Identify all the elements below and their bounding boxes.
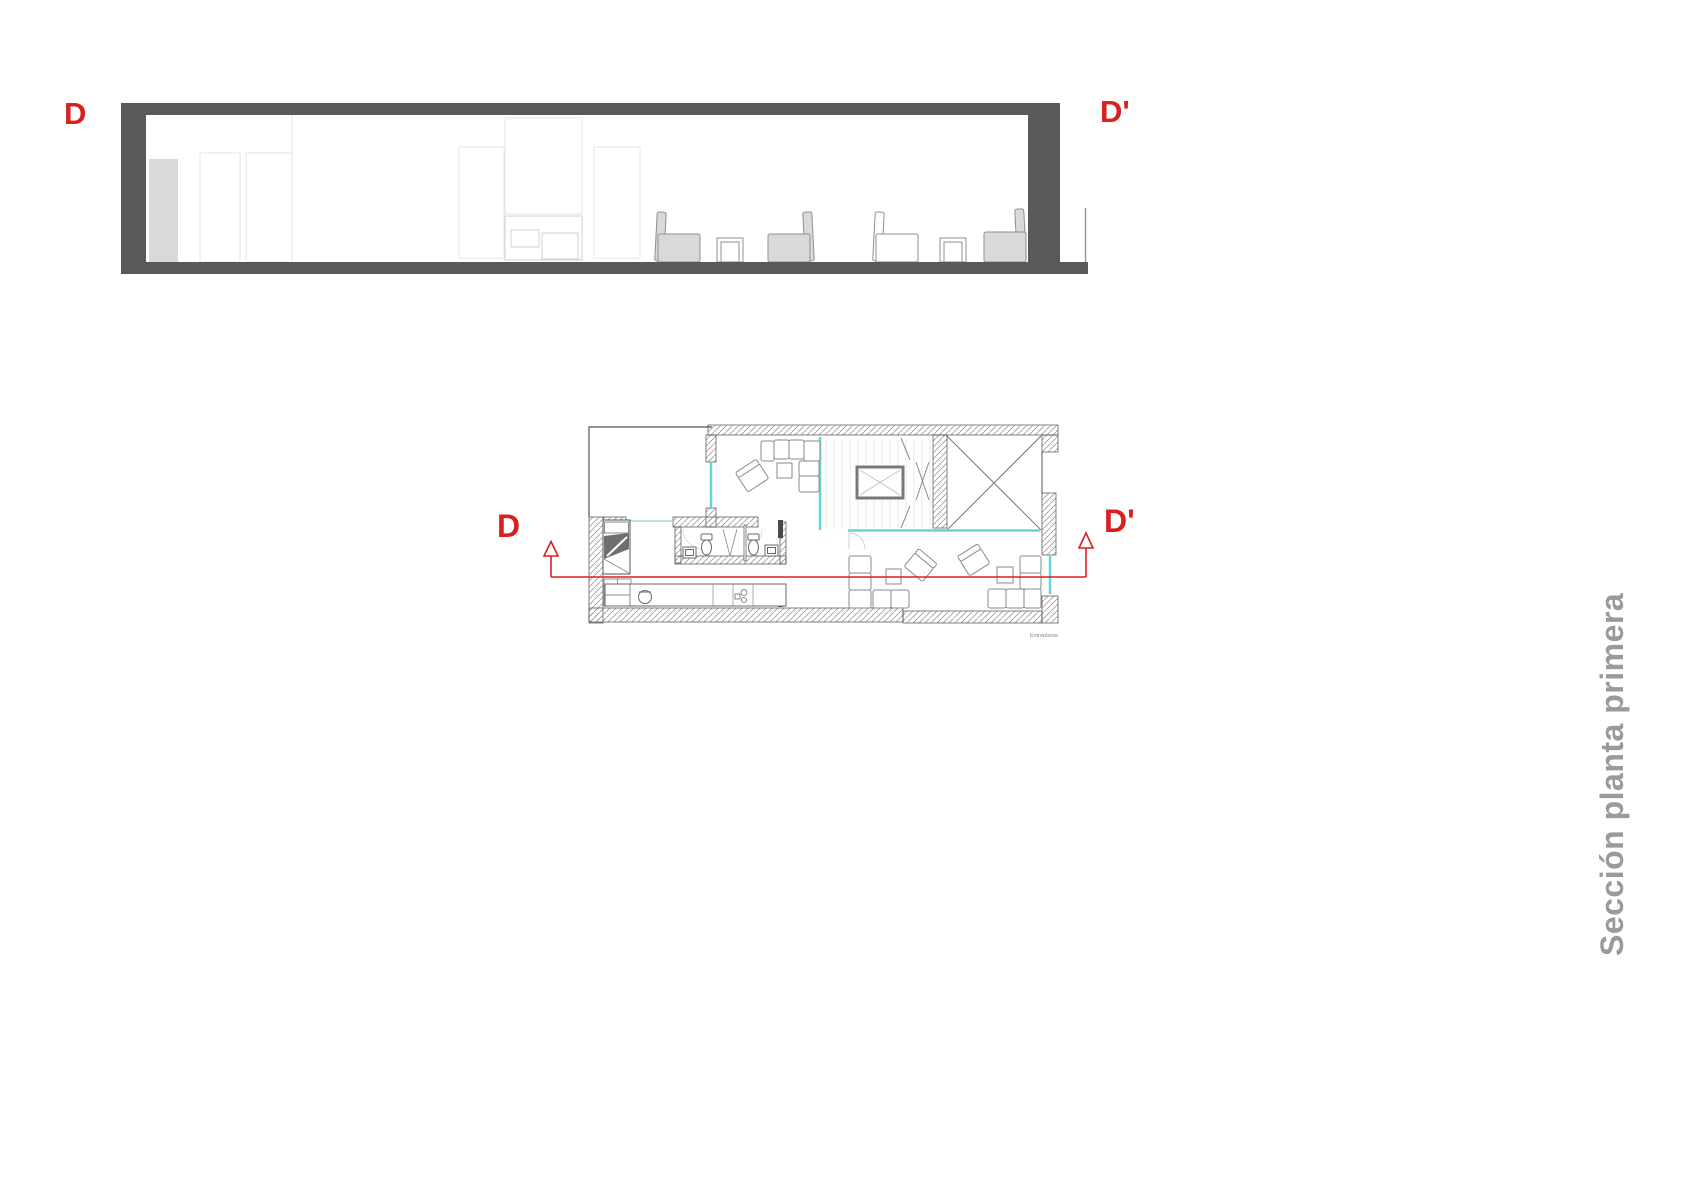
section-low-cabinet: [505, 216, 582, 260]
lounge-group-a: [849, 549, 937, 608]
section-background-lines: [149, 115, 640, 262]
door-swing: [849, 533, 865, 549]
elevator-box: [857, 467, 903, 498]
bathroom-fixtures: [683, 529, 778, 558]
sheet-title: Sección planta primera: [1594, 593, 1631, 956]
section-drawing: D D': [40, 80, 1160, 290]
massage-bed: [603, 520, 630, 574]
section-side-table-2: [940, 238, 966, 262]
section-marker-d-prime: D': [1100, 94, 1130, 129]
lounge-side-table: [777, 463, 792, 478]
plan-caption: Entreplanta: [1030, 633, 1059, 639]
shaft-cross: [947, 436, 1041, 530]
section-arrow-left: [544, 542, 558, 557]
floor-plan-drawing: D D' Entreplanta: [430, 375, 1170, 665]
lounge-group-b: [957, 544, 1041, 608]
glass-partitions: [627, 437, 1050, 594]
plan-marker-d: D: [497, 508, 520, 544]
lounge-armchair: [735, 459, 768, 492]
section-armchair-3: [873, 212, 918, 262]
section-gray-cabinet: [149, 159, 178, 262]
stair-break-marks: [901, 438, 929, 528]
section-armchair-2: [768, 212, 814, 262]
section-armchair-1: [655, 212, 700, 262]
section-marker-d: D: [64, 96, 86, 131]
section-side-table-1: [717, 238, 743, 262]
cabin-room-outline: [589, 427, 712, 517]
plan-marker-d-prime: D': [1104, 503, 1135, 539]
bar-counter: [605, 584, 786, 606]
section-armchair-4: [984, 209, 1026, 262]
section-arrow-right: [1079, 533, 1093, 548]
